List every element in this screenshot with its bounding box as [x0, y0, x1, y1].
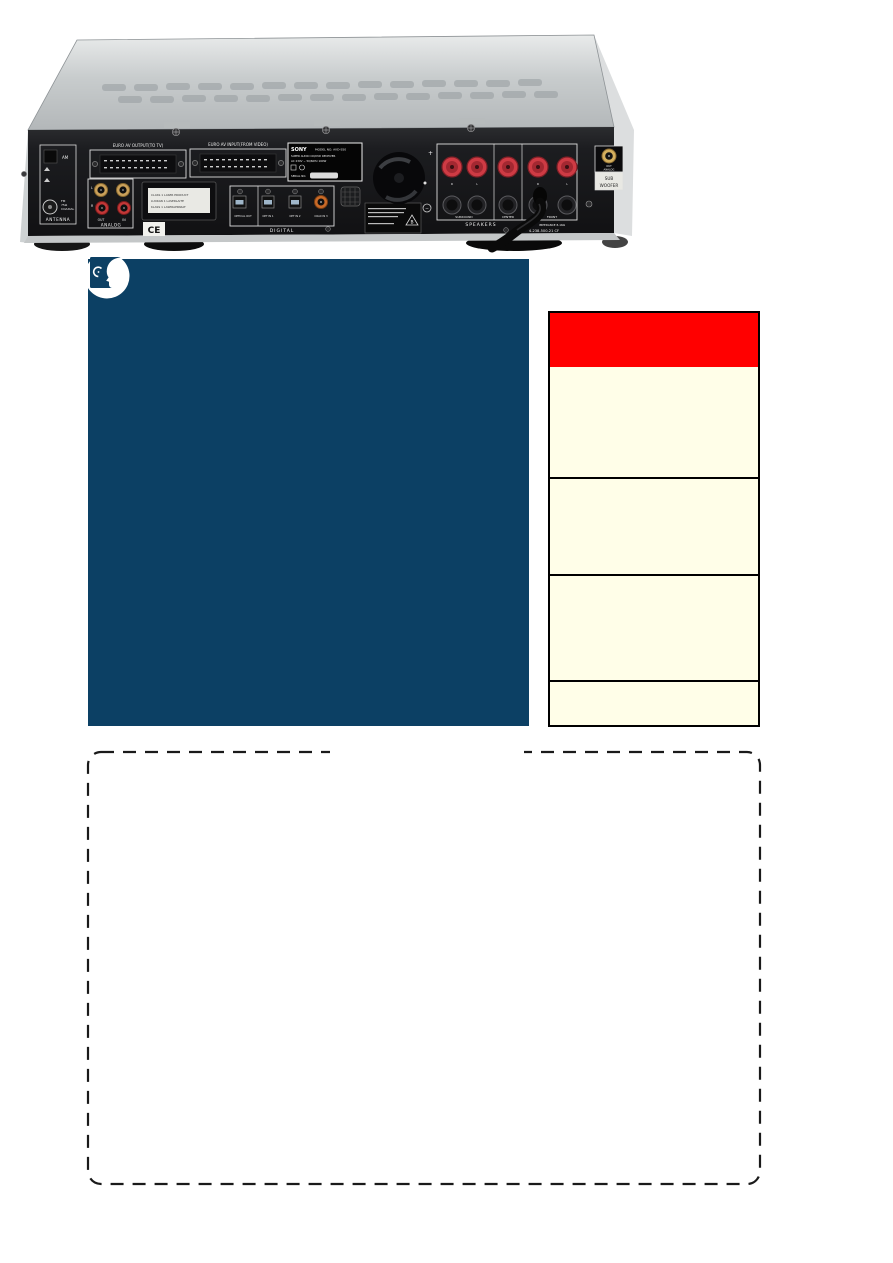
caution-mark: B: [410, 220, 413, 226]
rca-jack-white-in: [117, 184, 130, 197]
coax-in-3-label: COAX IN 3: [314, 214, 328, 218]
sub-label: SUB: [605, 176, 614, 181]
screw-icon: [238, 189, 243, 194]
front-r-label: R: [537, 182, 539, 186]
screw-icon: [266, 189, 271, 194]
screw-icon: [322, 126, 329, 133]
screw-icon: [172, 128, 179, 135]
note-box: [86, 750, 762, 1186]
rca-jack-red-out: [96, 202, 109, 215]
subwoofer-jack: [602, 149, 616, 163]
opt-in-1-label: OPT IN 1: [262, 214, 274, 218]
screw-icon: [467, 124, 474, 131]
note-box-border: [86, 750, 762, 1186]
polarity-dot: [424, 182, 427, 185]
binding-post-red: [557, 157, 577, 177]
laser-line-3: KLASS 1 LASERAPPARAT: [151, 205, 186, 209]
screw-icon: [326, 227, 331, 232]
table-row-3: [550, 574, 758, 680]
scart-connector: [100, 155, 176, 173]
sub-out-label: OUT: [606, 164, 612, 168]
laser-label: CLASS 1 LASER PRODUCT LUOKAN 1 LASERLAIT…: [142, 182, 216, 220]
screw-icon: [178, 161, 183, 166]
speakers-label: SPEAKERS: [465, 222, 496, 228]
screw-icon: [92, 161, 97, 166]
plus-label: +: [428, 150, 433, 157]
am-label: AM: [62, 155, 69, 160]
border-gap: [330, 750, 524, 755]
product-label: SUPER AUDIO CD/DVD RECEIVER: [291, 154, 335, 158]
binding-post-black: [499, 196, 517, 214]
opt-in-2-label: OPT IN 2: [289, 214, 301, 218]
rca-jack-white-out: [95, 184, 108, 197]
laser-line-2: LUOKAN 1 LASERLAITE: [151, 199, 184, 203]
binding-post-red: [498, 157, 518, 177]
binding-post-red: [528, 157, 548, 177]
euro-av-input-label: EURO AV INPUT(FROM VIDEO): [208, 142, 268, 147]
screw-icon: [319, 189, 324, 194]
antenna-label: ANTENNA: [46, 217, 71, 222]
device-rear-illustration: AM FM 75Ω COAXIAL ANTENNA EURO AV OUTPUT…: [14, 26, 650, 254]
table-header-red: [550, 313, 758, 367]
am-terminal: [44, 150, 57, 163]
minus-label: −: [425, 207, 429, 212]
binding-post-black: [558, 196, 576, 214]
serial-number-plate: [310, 173, 338, 179]
table-row-1: [550, 367, 758, 477]
scart-connector: [200, 154, 276, 172]
laser-line-1: CLASS 1 LASER PRODUCT: [151, 193, 189, 197]
digital-label: DIGITAL: [270, 228, 295, 234]
impedance-label: IMPEDANCE 8-16Ω: [539, 223, 566, 227]
optical-out-label: OPTICAL OUT: [234, 214, 252, 218]
binding-post-red: [467, 157, 487, 177]
part-number-label: 4-238-500-21 CF: [529, 229, 559, 233]
fan-vent: [373, 152, 425, 204]
binding-post-black: [468, 196, 486, 214]
sub-analog-label: ANALOG: [604, 168, 615, 172]
table-row-4: [550, 680, 758, 725]
small-vent-grid: [341, 187, 360, 206]
out-label: OUT: [98, 218, 105, 222]
ear-dot: [98, 271, 100, 273]
table-row-2: [550, 477, 758, 574]
analog-label: ANALOG: [101, 223, 122, 228]
chapter-info-panel: [88, 259, 529, 726]
screw-icon: [192, 160, 197, 165]
screw-icon: [293, 189, 298, 194]
device-rear-photo: AM FM 75Ω COAXIAL ANTENNA EURO AV OUTPUT…: [14, 26, 650, 254]
left-channel-label: L: [91, 186, 93, 190]
front-label: FRONT: [547, 215, 557, 219]
surround-r-label: R: [451, 182, 453, 186]
side-screw-icon: [21, 171, 26, 176]
sidebar-table: [548, 311, 760, 727]
model-label: MODEL NO. AVD-S50: [315, 148, 346, 152]
rating-label: SONY MODEL NO. AVD-S50 SUPER AUDIO CD/DV…: [288, 143, 362, 181]
ce-mark: CE: [143, 222, 165, 236]
manual-page: { "page": { "background": "#ffffff", "ty…: [0, 0, 893, 1263]
coax-in-jack: [315, 196, 328, 209]
euro-av-output-label: EURO AV OUTPUT(TO TV): [113, 143, 164, 148]
rca-jack-red-in: [118, 202, 131, 215]
surround-label: SURROUND: [455, 215, 473, 219]
caution-label: B: [365, 203, 421, 233]
ce-text: CE: [148, 226, 161, 236]
serial-label: SERIAL NO.: [291, 174, 306, 178]
brand-label: SONY: [291, 147, 307, 153]
center-label: CENTER: [502, 215, 514, 219]
binding-post-black: [443, 196, 461, 214]
power-rating-label: AC 230V ~ 50/60Hz 160W: [291, 159, 327, 163]
screw-icon: [278, 160, 283, 165]
fm-coax-label: COAXIAL: [61, 207, 74, 211]
chapter-icon: [79, 250, 135, 306]
screw-icon: [504, 228, 509, 233]
screw-icon: [586, 201, 592, 207]
binding-post-red: [442, 157, 462, 177]
woofer-label: WOOFER: [600, 183, 619, 188]
